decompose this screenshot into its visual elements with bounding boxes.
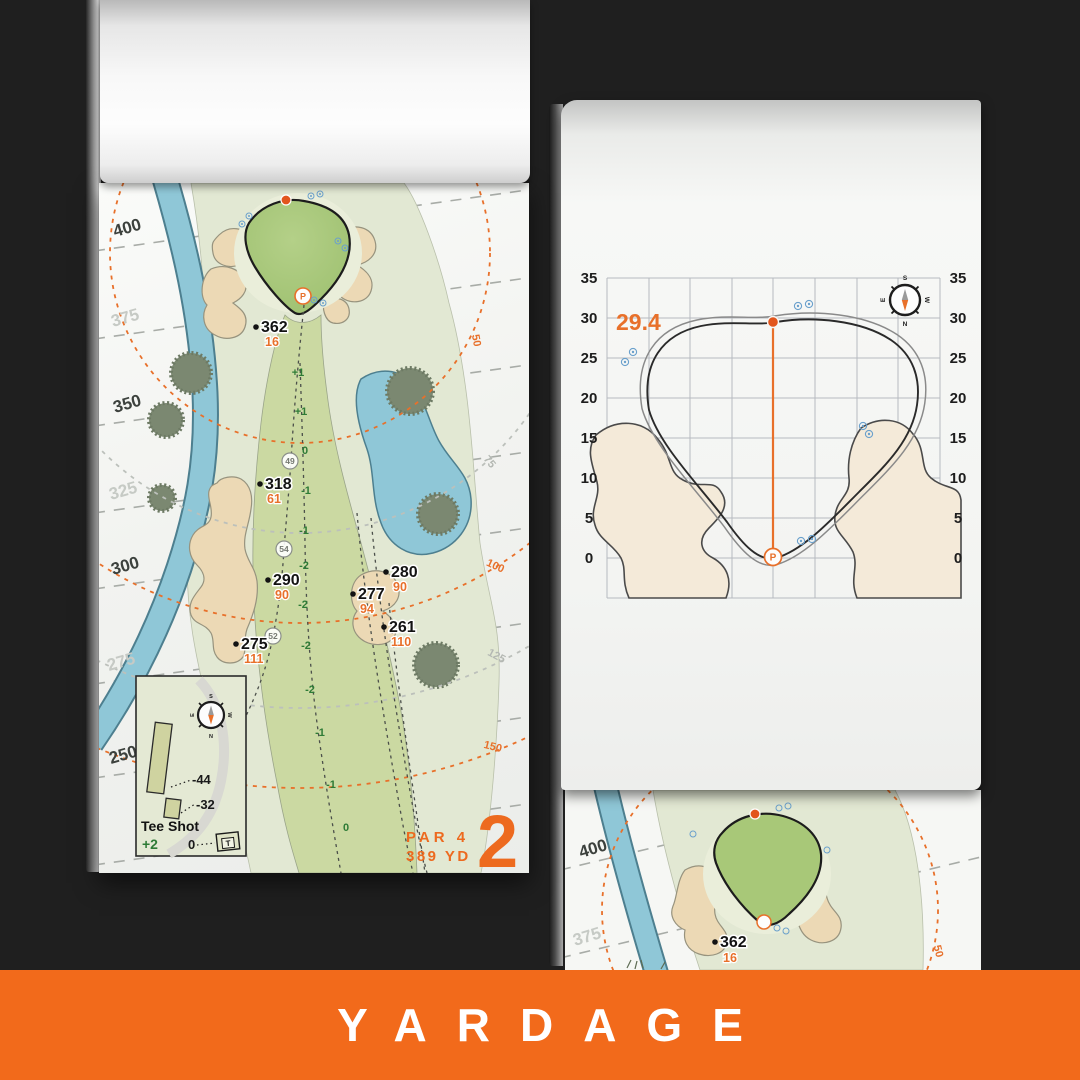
front-distance: 16 — [265, 335, 279, 349]
tick-label: 325 — [107, 478, 140, 504]
elevation-value: -2 — [305, 684, 315, 696]
river — [605, 790, 657, 970]
axis-tick: 5 — [954, 510, 962, 527]
carry-distance: 261 — [389, 619, 416, 636]
carry-distance: 290 — [273, 572, 300, 589]
right-booklet-green-detail-page: P 29.4 — [561, 100, 981, 790]
midpoint-label: 49 — [285, 456, 295, 466]
tee-box-icon: T — [216, 832, 240, 851]
front-distance: 90 — [275, 588, 289, 602]
axis-tick: 25 — [581, 350, 598, 367]
ring-label: 50 — [469, 333, 483, 347]
axis-tick: 20 — [581, 390, 598, 407]
tee-shot-inset: -44 -32 0 Tee Shot +2 T — [136, 676, 246, 856]
front-distance: 61 — [267, 492, 281, 506]
tick-label: 250 — [107, 742, 140, 768]
elevation-value: +1 — [295, 406, 308, 418]
midpoint-label: 52 — [268, 631, 278, 641]
compass-w: W — [226, 712, 232, 718]
banner-title: YARDAGE — [307, 998, 773, 1052]
green-detail-chart: P 29.4 — [561, 100, 981, 790]
tick-label: 400 — [577, 835, 610, 861]
yardage-label: 389 YD — [406, 848, 471, 865]
product-scene: P — [0, 0, 1080, 1080]
pin-dot — [768, 317, 779, 328]
front-distance: 94 — [360, 602, 374, 616]
zero-reference: 0 — [188, 837, 195, 852]
front-distance: 111 — [244, 652, 264, 666]
front-distance: 90 — [393, 580, 407, 594]
green-detail-bunkers — [590, 420, 961, 598]
front-distance: 110 — [391, 635, 411, 649]
elevation-value: -1 — [326, 779, 336, 791]
carry-distance: 318 — [265, 476, 292, 493]
tick-label: 350 — [111, 391, 144, 417]
carry-distance: 362 — [261, 319, 288, 336]
tick-label: 375 — [109, 305, 142, 331]
elevation-value: -2 — [301, 640, 311, 652]
elevation-value: -1 — [315, 727, 325, 739]
ring-label: 100 — [484, 557, 506, 576]
pin-dot — [281, 195, 291, 205]
axis-tick: 10 — [581, 470, 598, 487]
compass-e: E — [190, 713, 196, 717]
compass-n: N — [209, 734, 213, 740]
elevation-value: -1 — [301, 485, 311, 497]
axis-tick: 30 — [950, 310, 967, 327]
front-distance: 16 — [723, 951, 737, 965]
axis-tick: 30 — [581, 310, 598, 327]
pin-marker-circle — [757, 915, 771, 929]
ring-label: 50 — [931, 944, 946, 959]
axis-tick: 15 — [581, 430, 598, 447]
carry-distance: 275 — [241, 636, 268, 653]
midpoint-label: 54 — [279, 544, 289, 554]
green-depth-value: 29.4 — [616, 309, 661, 335]
elevation-value: -2 — [298, 599, 308, 611]
compass-w: W — [923, 297, 930, 304]
right-booklet-next-page: 400 375 50 362 16 — [565, 790, 981, 970]
compass-icon: S N W E — [880, 275, 930, 328]
axis-tick: 0 — [585, 550, 593, 567]
pin-marker-label: P — [300, 292, 306, 302]
front-tee-width: -32 — [196, 797, 215, 812]
compass-e: E — [880, 297, 887, 302]
carry-distance: 362 — [720, 934, 747, 951]
axis-tick: 35 — [950, 270, 967, 287]
axis-tick: 10 — [950, 470, 967, 487]
carry-distance: 277 — [358, 586, 385, 603]
axis-tick: 15 — [950, 430, 967, 447]
next-page-map: 400 375 50 362 16 — [565, 790, 981, 970]
compass-s: S — [903, 275, 908, 282]
hole-map: P — [99, 183, 529, 873]
elevation-value: 0 — [343, 822, 349, 834]
hole-number: 2 — [477, 800, 518, 873]
tick-label: 375 — [571, 923, 604, 949]
pin-marker-label: P — [770, 553, 777, 564]
axis-tick: 25 — [950, 350, 967, 367]
yardage-banner: YARDAGE — [0, 970, 1080, 1080]
elevation-value: -1 — [299, 525, 309, 537]
elevation-value: +1 — [292, 367, 305, 379]
axis-tick: 0 — [954, 550, 962, 567]
inset-title: Tee Shot — [141, 818, 199, 834]
tick-label: 400 — [111, 215, 144, 241]
par-label: PAR 4 — [406, 829, 469, 846]
pin-dot — [750, 809, 760, 819]
tee-shot-score: +2 — [142, 836, 158, 852]
axis-tick: 35 — [581, 270, 598, 287]
left-booklet-flipped-page — [100, 0, 530, 183]
compass-n: N — [903, 321, 908, 328]
elevation-value: -2 — [299, 560, 309, 572]
elevation-value: 0 — [302, 445, 308, 457]
axis-tick: 20 — [950, 390, 967, 407]
left-booklet-hole-map-page: P — [99, 183, 529, 873]
carry-distance: 280 — [391, 564, 418, 581]
axis-tick: 5 — [585, 510, 593, 527]
back-tee-width: -44 — [192, 772, 212, 787]
compass-s: S — [209, 694, 213, 700]
tick-label: 300 — [109, 553, 142, 579]
